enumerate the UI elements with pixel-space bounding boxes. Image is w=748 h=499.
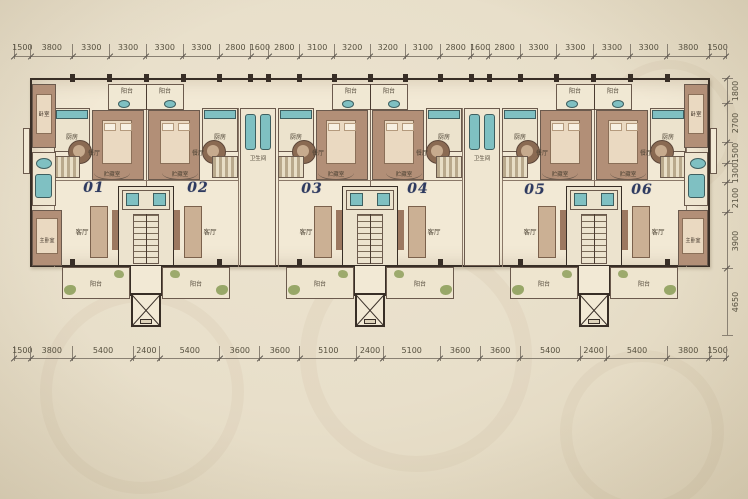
bay-wall (54, 180, 238, 181)
shaft-pit-icon (588, 319, 600, 324)
stairs-divider (370, 214, 371, 264)
wall-column (248, 74, 253, 82)
washbasin-icon (388, 100, 400, 108)
dimension-top-value: 1500 (698, 43, 738, 53)
wall-column (403, 74, 408, 82)
tv-cabinet-icon (560, 210, 566, 250)
elevator-cab-icon (126, 193, 139, 206)
kitchen-label: 厨房 (272, 134, 320, 142)
wall-column (368, 74, 373, 82)
dimension-top-value: 3300 (145, 43, 185, 53)
balcony-label: 阳台 (520, 281, 568, 289)
dimension-top-value: 3300 (555, 43, 595, 53)
plant-icon (170, 270, 180, 278)
dimension-bottom-value: 2400 (126, 346, 166, 356)
plant-icon (338, 270, 348, 278)
unit-number-03: 03 (294, 181, 330, 197)
shaft-neck (354, 266, 386, 296)
unit-number-05: 05 (517, 182, 553, 198)
wall-column (266, 74, 271, 82)
tv-cabinet-icon (622, 210, 628, 250)
dimension-bottom-value: 1500 (698, 346, 738, 356)
side-balcony (23, 128, 30, 174)
storage-arc (318, 166, 354, 180)
dimension-top-value: 3300 (592, 43, 632, 53)
plant-icon (394, 270, 404, 278)
living-label: 客厅 (58, 228, 106, 237)
dimension-top-value: 3800 (32, 43, 72, 53)
bathroom-tiled (54, 156, 80, 178)
balcony-label: 阳台 (172, 281, 220, 289)
wall-column (107, 74, 112, 82)
washbasin-icon (118, 100, 130, 108)
balcony-label: 阳台 (141, 88, 189, 96)
washbasin-icon (612, 100, 624, 108)
unit-number-01: 01 (76, 180, 112, 196)
wall-column (628, 74, 633, 82)
unit-number-02: 02 (180, 180, 216, 196)
storage-arc (610, 166, 646, 180)
tv-cabinet-icon (174, 210, 180, 250)
bed-pillow (162, 123, 174, 131)
bed-pillow (402, 123, 414, 131)
bay-wall (238, 108, 239, 267)
wall-column (297, 259, 302, 267)
dimension-top-value: 3300 (519, 43, 559, 53)
bedroom-label: 卧室 (20, 112, 68, 120)
wall-column (332, 74, 337, 82)
bathroom-label: 卫生间 (458, 156, 506, 164)
dimension-top-value: 3300 (629, 43, 669, 53)
dimension-top-value: 3100 (297, 43, 337, 53)
dimension-bottom-value: 3600 (220, 346, 260, 356)
dimension-top-value: 3200 (368, 43, 408, 53)
kitchen-counter (428, 110, 460, 119)
tv-cabinet-icon (336, 210, 342, 250)
wall-column (469, 74, 474, 82)
living-label: 客厅 (506, 228, 554, 237)
watermark-circle (560, 350, 724, 499)
bathtub-icon (35, 174, 52, 198)
stairs-divider (594, 214, 595, 264)
wall-column (217, 74, 222, 82)
kitchen-counter (280, 110, 312, 119)
washbasin-icon (566, 100, 578, 108)
elevator-cab-icon (574, 193, 587, 206)
dimension-bottom-value: 3600 (260, 346, 300, 356)
wall-column (144, 74, 149, 82)
wall-column (70, 259, 75, 267)
bathtub-icon (245, 114, 256, 150)
bathroom-label: 卫生间 (234, 156, 282, 164)
storage-arc (162, 166, 198, 180)
bed-pillow (626, 123, 638, 131)
bed-pillow (386, 123, 398, 131)
balcony-label: 阳台 (365, 88, 413, 96)
dimension-top-value: 3300 (71, 43, 111, 53)
kitchen-counter (504, 110, 536, 119)
living-label: 客厅 (634, 228, 682, 237)
living-label: 客厅 (410, 228, 458, 237)
dimension-bottom-value: 5400 (617, 346, 657, 356)
wall-column (554, 74, 559, 82)
elevator-cab-icon (377, 193, 390, 206)
elevator-cab-icon (601, 193, 614, 206)
bay-wall (462, 108, 463, 267)
plant-icon (618, 270, 628, 278)
unit-number-06: 06 (624, 182, 660, 198)
wall-column (665, 259, 670, 267)
wall-column (487, 74, 492, 82)
wall-column (217, 259, 222, 267)
dimension-right-value: 3900 (731, 221, 741, 261)
bathtub-icon (688, 174, 705, 198)
dimension-bottom-value: 5400 (170, 346, 210, 356)
balcony-label: 阳台 (589, 88, 637, 96)
plant-icon (562, 270, 572, 278)
dimension-bottom-value: 2400 (574, 346, 614, 356)
wall-column (70, 74, 75, 82)
side-balcony (710, 128, 717, 174)
tv-cabinet-icon (112, 210, 118, 250)
wall-column (181, 74, 186, 82)
bathtub-icon (260, 114, 271, 150)
bed-pillow (568, 123, 580, 131)
dimension-bottom-value: 3800 (32, 346, 72, 356)
unit-number-04: 04 (400, 181, 436, 197)
dimension-bottom-value: 5400 (83, 346, 123, 356)
elevator-cab-icon (350, 193, 363, 206)
kitchen-counter (204, 110, 236, 119)
dimension-bottom-value: 5100 (392, 346, 432, 356)
bed-pillow (120, 123, 132, 131)
bed-icon (682, 218, 704, 254)
bay-wall (278, 180, 462, 181)
shaft-neck (578, 266, 610, 296)
dimension-bottom-value: 2400 (350, 346, 390, 356)
storage-arc (542, 166, 578, 180)
bed-pillow (328, 123, 340, 131)
dimension-bottom-line (14, 358, 726, 359)
dimension-bottom-value: 5100 (308, 346, 348, 356)
bathtub-icon (469, 114, 480, 150)
bed-pillow (344, 123, 356, 131)
dimension-bottom-value: 3600 (480, 346, 520, 356)
balcony-label: 阳台 (72, 281, 120, 289)
living-label: 客厅 (282, 228, 330, 237)
wall-column (297, 74, 302, 82)
living-label: 客厅 (186, 228, 234, 237)
dimension-right-value: 4650 (731, 282, 741, 322)
wall-column (438, 259, 443, 267)
shaft-neck (130, 266, 162, 296)
bed-icon (36, 218, 58, 254)
dimension-right-line (727, 78, 728, 335)
wall-column (518, 259, 523, 267)
bed-pillow (178, 123, 190, 131)
washbasin-icon (164, 100, 176, 108)
storage-arc (94, 166, 130, 180)
balcony-label: 阳台 (396, 281, 444, 289)
balcony-label: 阳台 (296, 281, 344, 289)
bed-pillow (104, 123, 116, 131)
floorplan-photo: 01 02 03 04 05 06 1500380033003300330033… (0, 0, 748, 499)
plant-icon (114, 270, 124, 278)
bed-pillow (552, 123, 564, 131)
dimension-bottom-value: 3600 (440, 346, 480, 356)
wall-column (438, 74, 443, 82)
kitchen-label: 厨房 (496, 134, 544, 142)
master-bedroom-label: 主卧室 (669, 238, 717, 245)
master-bedroom-label: 主卧室 (23, 238, 71, 245)
bedroom-label: 卧室 (672, 112, 720, 120)
dimension-bottom-value: 5400 (530, 346, 570, 356)
balcony-label: 阳台 (620, 281, 668, 289)
washbasin-icon (342, 100, 354, 108)
tv-cabinet-icon (398, 210, 404, 250)
wall-column (518, 74, 523, 82)
bay-wall (502, 180, 686, 181)
shaft-pit-icon (364, 319, 376, 324)
bed-pillow (610, 123, 622, 131)
wall-column (591, 74, 596, 82)
sink-icon (36, 158, 52, 169)
dimension-top-value: 3200 (332, 43, 372, 53)
bathroom-tiled (660, 156, 686, 178)
dim-tick (722, 335, 733, 336)
stairs-divider (146, 214, 147, 264)
storage-arc (386, 166, 422, 180)
bathtub-icon (484, 114, 495, 150)
dimension-top-value: 3300 (108, 43, 148, 53)
sink-icon (690, 158, 706, 169)
wall-column (665, 74, 670, 82)
shaft-pit-icon (140, 319, 152, 324)
elevator-cab-icon (153, 193, 166, 206)
